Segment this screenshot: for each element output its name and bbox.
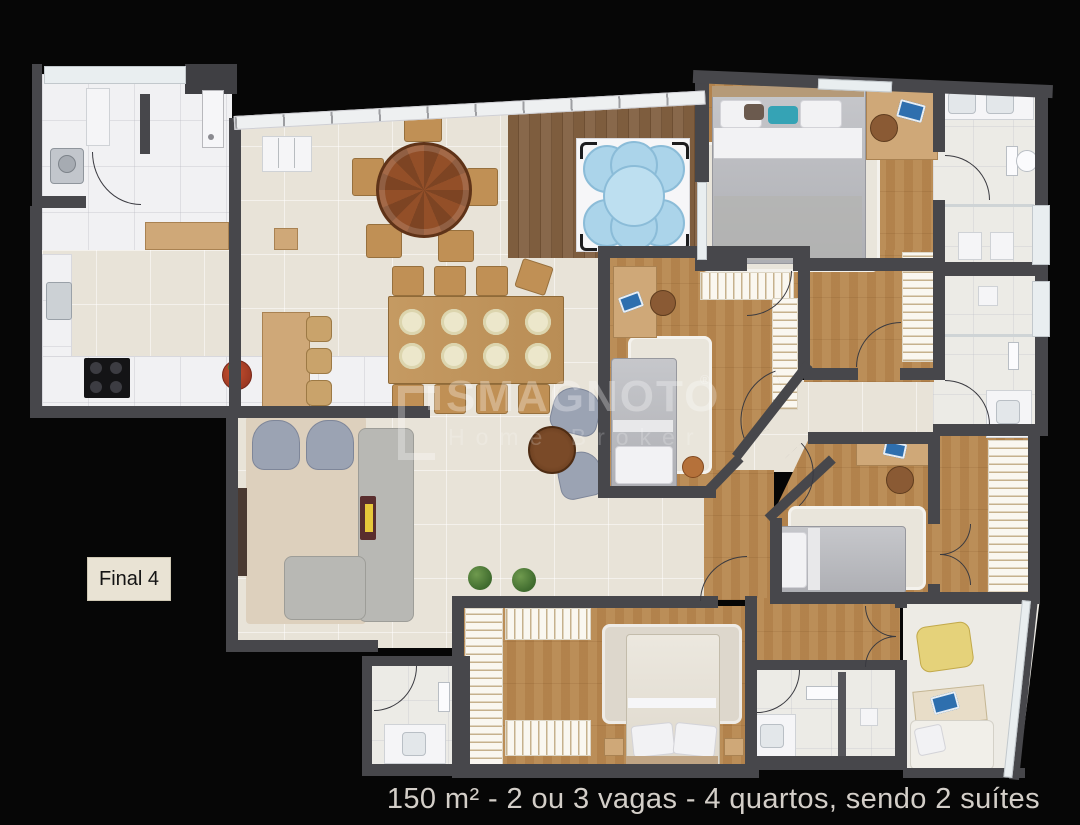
toilet bbox=[978, 344, 1008, 366]
plate bbox=[441, 343, 467, 369]
wall bbox=[793, 258, 940, 271]
plate bbox=[525, 309, 551, 335]
suite2-closet bbox=[505, 720, 591, 756]
pouf bbox=[682, 456, 704, 478]
service-cabinet bbox=[86, 88, 110, 146]
lavabo-basin bbox=[402, 732, 426, 756]
bar-stool bbox=[306, 316, 332, 342]
wall bbox=[928, 432, 940, 524]
shower-glass-line bbox=[938, 334, 1034, 337]
bed-sheet-fold bbox=[714, 128, 862, 159]
bath1-basin bbox=[948, 92, 976, 114]
cooktop-burner bbox=[90, 362, 102, 374]
balcony-chair bbox=[438, 230, 474, 262]
desk-chair bbox=[886, 466, 914, 494]
wall bbox=[32, 64, 42, 214]
nightstand bbox=[724, 738, 744, 756]
wall bbox=[808, 432, 940, 444]
plan-caption: 150 m² - 2 ou 3 vagas - 4 quartos, sendo… bbox=[387, 783, 1040, 816]
plant bbox=[468, 566, 492, 590]
wall bbox=[452, 764, 759, 778]
closet-room-rack bbox=[988, 440, 1032, 594]
plate bbox=[483, 343, 509, 369]
bar-stool bbox=[306, 348, 332, 374]
spa-base bbox=[576, 138, 690, 252]
wall bbox=[933, 424, 1048, 436]
sideboard-divider bbox=[278, 138, 279, 168]
dining-chair bbox=[392, 266, 424, 296]
wall bbox=[745, 596, 757, 778]
wall bbox=[30, 206, 42, 418]
shower-head bbox=[860, 708, 878, 726]
entry-door-knob bbox=[208, 134, 214, 140]
entry-door-leaf bbox=[202, 90, 224, 148]
wall bbox=[140, 94, 150, 154]
bed-sheet-fold bbox=[613, 420, 673, 432]
entry-bench bbox=[145, 222, 229, 250]
shower-partition bbox=[838, 672, 846, 756]
wall bbox=[362, 656, 372, 774]
wall bbox=[1028, 436, 1040, 596]
plate bbox=[399, 309, 425, 335]
shower-glass-line bbox=[938, 204, 1034, 207]
wall bbox=[226, 640, 378, 652]
cooktop-burner bbox=[110, 381, 122, 393]
dining-chair bbox=[476, 384, 508, 414]
toilet-tank bbox=[1008, 342, 1019, 370]
bed-accent-pillow-teal bbox=[768, 106, 798, 124]
toilet-tank bbox=[438, 682, 450, 712]
spa-grab-bar bbox=[580, 234, 597, 251]
wall bbox=[598, 486, 716, 498]
bath2-basin bbox=[996, 400, 1020, 424]
wall bbox=[933, 276, 945, 380]
suite2-closet bbox=[465, 608, 503, 768]
bed-pillow bbox=[800, 100, 842, 128]
bed-pillow bbox=[779, 532, 807, 588]
plate bbox=[441, 309, 467, 335]
bar-stool bbox=[306, 380, 332, 406]
side-table bbox=[274, 228, 298, 250]
wall bbox=[804, 368, 858, 380]
yellow-armchair bbox=[915, 620, 975, 673]
desk-chair bbox=[870, 114, 898, 142]
dining-chair bbox=[476, 266, 508, 296]
bed-accent-pillow-brown bbox=[744, 104, 764, 120]
sofa-seat bbox=[284, 556, 366, 620]
desk-chair bbox=[650, 290, 676, 316]
toilet bbox=[810, 700, 834, 730]
bed-pillow bbox=[630, 722, 675, 758]
armchair bbox=[252, 420, 300, 470]
wall bbox=[933, 86, 945, 152]
spa-grab-bar bbox=[580, 142, 597, 159]
kitchen-sink bbox=[46, 282, 72, 320]
bed-sheet-fold bbox=[628, 698, 716, 708]
spa-grab-bar bbox=[672, 142, 689, 159]
suite2-closet bbox=[505, 608, 591, 640]
wall bbox=[452, 596, 718, 608]
toilet-tank bbox=[806, 686, 840, 700]
plate bbox=[525, 343, 551, 369]
dining-chair bbox=[434, 384, 466, 414]
sideboard-divider bbox=[294, 138, 295, 168]
bed-pillow bbox=[615, 446, 673, 484]
sofa-throw-yellow bbox=[365, 504, 373, 532]
dining-chair bbox=[434, 266, 466, 296]
plant bbox=[512, 568, 536, 592]
shower-control bbox=[990, 232, 1014, 260]
breakfast-bar bbox=[262, 312, 310, 408]
plate bbox=[483, 309, 509, 335]
wall bbox=[895, 664, 907, 770]
washer-door bbox=[58, 155, 76, 173]
cooktop-burner bbox=[90, 381, 102, 393]
balcony-sideboard bbox=[262, 136, 312, 172]
side-window bbox=[1032, 205, 1050, 265]
bed-pillow bbox=[672, 722, 717, 758]
sofa-cushion bbox=[913, 723, 946, 756]
wall bbox=[226, 412, 238, 652]
wall bbox=[770, 592, 942, 604]
cooktop-burner bbox=[110, 362, 122, 374]
glass-door-to-deck bbox=[697, 182, 707, 260]
wall bbox=[229, 118, 241, 412]
spa-center bbox=[603, 165, 665, 227]
side-window bbox=[1032, 281, 1050, 337]
dining-chair bbox=[518, 384, 550, 414]
bed-sheet-fold bbox=[808, 528, 820, 590]
floor-plan-canvas: SMAGNOTO ® Home Broker Final 4 150 m² - … bbox=[0, 0, 1080, 825]
shower-control bbox=[958, 232, 982, 260]
round-table bbox=[376, 142, 472, 238]
wall bbox=[933, 262, 1048, 276]
wall bbox=[770, 518, 782, 602]
shower-head bbox=[978, 286, 998, 306]
plate bbox=[399, 343, 425, 369]
armchair bbox=[306, 420, 354, 470]
wall bbox=[745, 756, 907, 770]
tv-panel bbox=[238, 488, 247, 576]
bath3-basin bbox=[760, 724, 784, 748]
coffee-table bbox=[528, 426, 576, 474]
unit-label-text: Final 4 bbox=[99, 568, 159, 591]
wall bbox=[452, 596, 464, 776]
service-window bbox=[44, 66, 186, 84]
wall bbox=[598, 250, 610, 496]
nightstand bbox=[604, 738, 624, 756]
unit-label: Final 4 bbox=[88, 558, 170, 600]
